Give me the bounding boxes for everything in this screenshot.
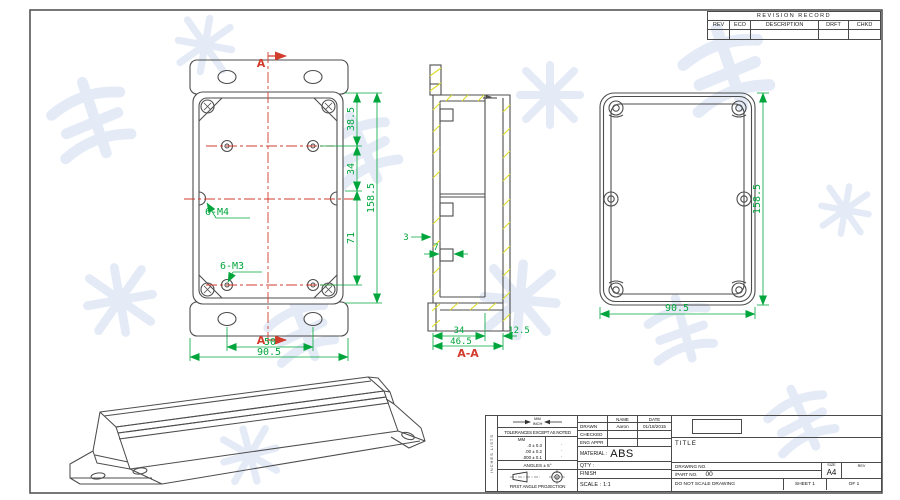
units-inch: INCH (533, 422, 543, 427)
material-label: MATERIAL : (580, 451, 607, 457)
part-no-value: 00 (705, 471, 712, 478)
do-not-scale-note: DO NOT SCALE DRAWING (672, 479, 784, 490)
back-view: 158.5 90.5 (600, 93, 769, 319)
thread-callout-m4: 6-M4 (205, 207, 229, 218)
first-angle-target-icon (549, 470, 565, 484)
title-bottom-row: DO NOT SCALE DRAWING SHEET 1 OF 1 (672, 479, 881, 490)
logo-area (672, 416, 881, 438)
finish-label: FINISH (580, 471, 596, 477)
drawn-label: DRAWN (578, 423, 608, 430)
section-view-label: A-A (457, 347, 479, 360)
drft-column-header: DRFT (819, 21, 849, 29)
drawing-number-row: DRAWING NO. /PART NO. 00 SIZE A4 REV (672, 463, 881, 479)
sheet-of-label: OF 1 (827, 479, 881, 490)
revision-record-title: REVISION RECORD (708, 12, 880, 21)
tol-dot: · (546, 454, 577, 460)
eng-appr-label: ENG APPR (578, 439, 608, 446)
first-angle-cone-icon (510, 471, 540, 483)
section-label-top: A (257, 57, 266, 70)
date-header: DATE (638, 416, 671, 422)
revision-header-row: REV ECO DESCRIPTION DRFT CHKD (708, 21, 880, 30)
title-block: INCHES LISTS MM INCH TOLERANCES EXCEPT A… (485, 415, 882, 492)
section-view: 3 7 34 46.5 12.5 A-A (403, 65, 530, 360)
units-row: MM INCH (498, 416, 577, 428)
title-main-block: TITLE DRAWING NO. /PART NO. 00 SIZE A4 R… (672, 416, 881, 491)
revision-empty-row (708, 30, 880, 39)
name-header: NAME (608, 416, 638, 422)
side-note: INCHES LISTS (489, 434, 494, 473)
dim-46-5: 46.5 (450, 337, 472, 347)
scale-value: 1:1 (603, 482, 611, 488)
drawing-sheet: A A 38.5 34 71 15 (0, 0, 900, 500)
title-label: TITLE (672, 438, 881, 463)
projection-label: FIRST ANGLE PROJECTION (498, 483, 577, 491)
dim-34: 34 (346, 163, 357, 175)
isometric-view (70, 377, 425, 484)
scale-label: SCALE : (580, 482, 601, 488)
rev-column-header: REV (708, 21, 730, 29)
angles-tolerance: ANGLES ± 5° (498, 461, 577, 470)
dim-38-5: 38.5 (346, 107, 357, 131)
dim-7: 7 (433, 243, 438, 253)
dim-158-5: 158.5 (366, 183, 377, 213)
logo-placeholder (692, 419, 742, 434)
description-column-header: DESCRIPTION (751, 21, 819, 29)
signature-block: NAME DATE DRAWN Aaron 01/18/2015 CHECKED… (578, 416, 672, 491)
rev-label: REV (842, 463, 881, 478)
qty-label: QT'Y : (580, 463, 594, 469)
dim-back-90-5: 90.5 (665, 303, 689, 314)
right-arrow-icon (544, 419, 562, 425)
thread-callout-m3: 6-M3 (220, 261, 244, 272)
dim-34-depth: 34 (454, 326, 465, 336)
eco-column-header: ECO (730, 21, 751, 29)
tolerances-heading: TOLERANCES EXCEPT AS NOTED (498, 428, 577, 437)
revision-record-table: REVISION RECORD REV ECO DESCRIPTION DRFT… (707, 11, 881, 40)
part-no-label: /PART NO. (675, 472, 697, 477)
dim-12-5: 12.5 (508, 326, 530, 336)
tolerance-table: MM .0 ± 0.3 .00 ± 0.2 .000 ± 0.1 · · · (498, 437, 577, 461)
dim-3: 3 (403, 233, 408, 243)
drawn-name: Aaron (608, 423, 638, 430)
chkd-column-header: CHKD (849, 21, 880, 29)
title-block-side-strip: INCHES LISTS (486, 416, 498, 491)
tolerance-block: MM INCH TOLERANCES EXCEPT AS NOTED MM .0… (498, 416, 578, 491)
projection-symbols (498, 470, 577, 483)
dim-back-158-5: 158.5 (752, 184, 763, 214)
left-arrow-icon (513, 419, 531, 425)
dim-71: 71 (346, 232, 357, 244)
sheet-label: SHEET 1 (784, 479, 827, 490)
drawing-no-label: DRAWING NO. (672, 463, 821, 471)
size-value: A4 (822, 468, 841, 477)
dim-90-5: 90.5 (257, 347, 281, 358)
material-value: ABS (610, 448, 634, 460)
drawn-date: 01/18/2015 (638, 423, 671, 430)
checked-label: CHECKED (578, 431, 608, 438)
